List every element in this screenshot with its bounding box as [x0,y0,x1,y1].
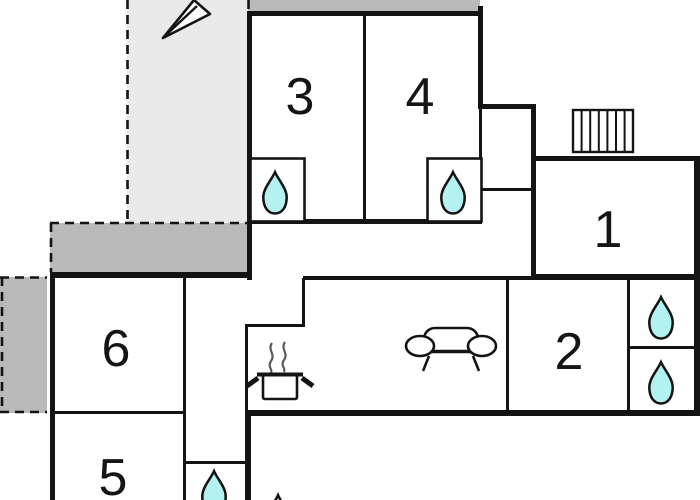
wall-room1-top [531,156,700,161]
sofa-armrest-left [406,336,434,356]
water-drop-icon-shower-top [649,297,672,338]
wall-room1-bottom [535,274,700,280]
wall-shower-rooms-divider [627,346,697,349]
wall-entry-step-top [478,104,536,109]
water-drop-icon-corridor-bath [649,362,672,403]
terrace-light-area [127,0,247,223]
pot-body [263,375,297,399]
water-drop-icon-bottom-left [202,471,225,500]
floor-plan-page: 1 2 3 4 5 6 [0,0,700,500]
wall-band-bottom [50,272,250,278]
floor-plan-canvas: 1 2 3 4 5 6 [0,0,700,500]
sofa-armrest-right [468,336,496,356]
room-5-label: 5 [99,449,128,500]
wall-left-rooms34 [247,11,252,280]
water-drop-icon-bottom-partial [266,495,289,500]
wall-corridor-bath-top [184,461,245,464]
wall-living-room2-divider [506,277,509,413]
wall-bottom-outer [245,410,700,416]
kitchen-counter-left [245,324,248,412]
wall-corridor-left [183,277,186,500]
room-3-label: 3 [286,68,315,126]
wall-bottom-room-left [245,410,251,500]
wall-vestibule-bottom [482,188,536,191]
wall-entry-right [531,104,536,280]
room-6-label: 6 [102,320,131,378]
wall-right-outer [694,156,700,415]
wall-living-top [303,276,535,280]
wall-room4-right [478,6,483,109]
stairs-icon [573,110,633,152]
room-4-label: 4 [406,68,435,126]
wall-room2-shower-divider [627,277,630,413]
room-2-label: 2 [555,323,584,381]
terrace-dark-band [50,223,247,272]
wall-room3-room4-divider [363,13,366,222]
room-1-label: 1 [594,201,623,259]
wall-room6-room5-divider [53,411,183,414]
wall-left-outer [50,272,55,500]
terrace-dark-left-strip [0,277,47,413]
terrace-dark-top-strip [248,0,480,11]
